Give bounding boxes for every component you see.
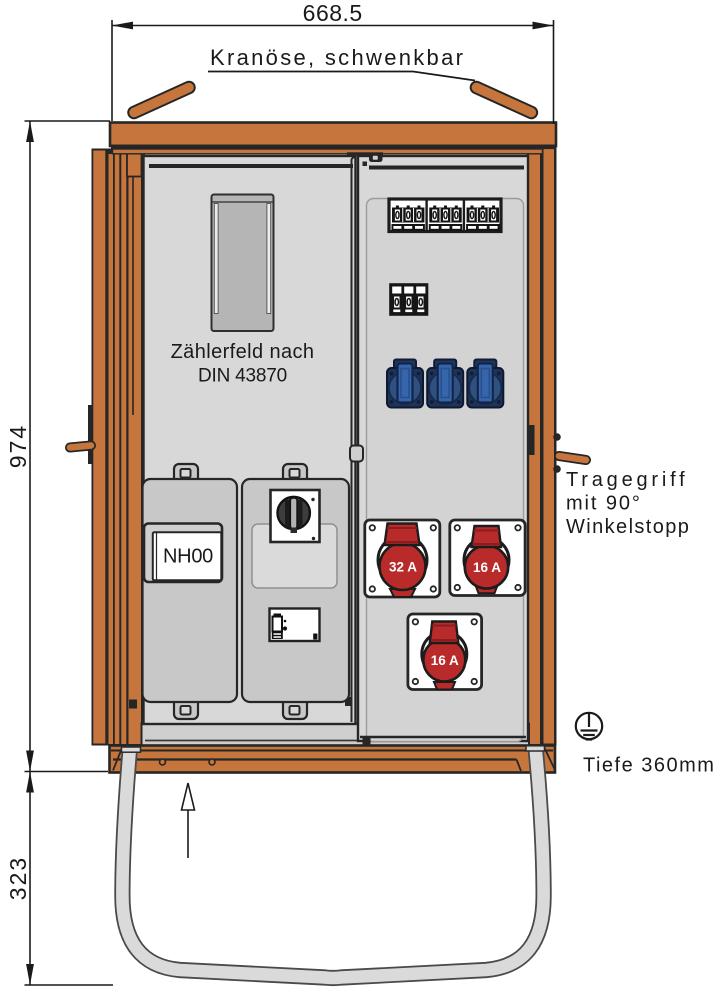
svg-text:32 A: 32 A [389, 560, 417, 575]
svg-text:Zählerfeld nach: Zählerfeld nach [171, 341, 315, 363]
svg-text:323: 323 [5, 856, 31, 900]
svg-text:Tiefe 360mm: Tiefe 360mm [583, 755, 715, 777]
svg-text:DIN 43870: DIN 43870 [198, 366, 287, 387]
svg-text:668.5: 668.5 [303, 0, 363, 26]
svg-text:mit 90°: mit 90° [566, 493, 642, 515]
svg-text:974: 974 [5, 424, 31, 468]
svg-text:NH00: NH00 [163, 546, 213, 568]
svg-text:16 A: 16 A [473, 560, 501, 575]
svg-text:16 A: 16 A [431, 653, 459, 668]
svg-text:Tragegriff: Tragegriff [566, 469, 688, 491]
svg-text:Kranöse, schwenkbar: Kranöse, schwenkbar [210, 45, 465, 70]
svg-text:Winkelstopp: Winkelstopp [566, 516, 690, 538]
